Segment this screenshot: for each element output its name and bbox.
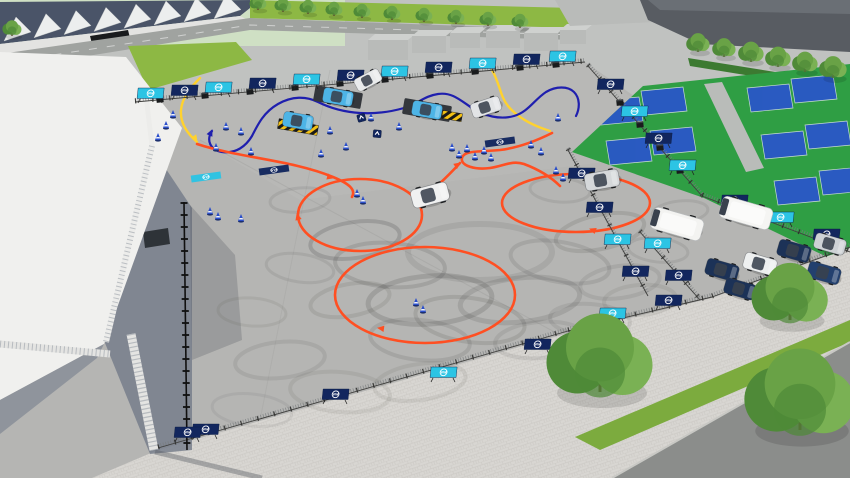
vw-logo-text: VW	[559, 54, 566, 58]
car-glass	[593, 173, 608, 188]
banner-board: VW	[137, 88, 164, 99]
cone-stripe	[156, 137, 160, 139]
banner-board: VW	[425, 62, 452, 73]
tree-shadow	[253, 9, 267, 14]
cone-stripe	[216, 216, 220, 218]
barrier-block	[616, 99, 624, 106]
tree-canopy	[358, 9, 366, 17]
cone-stripe	[489, 157, 493, 159]
tree-canopy	[254, 1, 262, 9]
banner-board: VW	[586, 202, 613, 213]
banner-board: VW	[645, 133, 672, 144]
car-glass	[330, 90, 343, 103]
banner-board: VW	[171, 85, 198, 96]
tree-shadow	[357, 17, 371, 22]
vw-logo-text: VW	[303, 77, 310, 81]
banner-board: VW	[205, 82, 232, 93]
banner-board: VW	[322, 389, 349, 400]
vw-logo-text: VW	[391, 69, 398, 73]
banner-board: VW	[665, 270, 692, 281]
banner-board: VW	[644, 238, 671, 249]
vw-logo-text: VW	[259, 81, 266, 85]
cone-stripe	[421, 309, 425, 311]
tree-shadow	[419, 21, 433, 26]
banner-board: VW	[549, 51, 576, 62]
barrier-block	[656, 144, 664, 151]
cone-stripe	[355, 193, 359, 195]
cone-stripe	[529, 144, 533, 146]
vw-logo-text: VW	[523, 57, 530, 61]
tree-canopy	[827, 65, 840, 78]
rendered-scene: VWVWVW VWVWVWVWVWVWVWVWVWVWVWVWVWVWVWVWV…	[0, 0, 850, 478]
tennis-court	[761, 131, 807, 159]
vw-logo-text: VW	[609, 311, 616, 315]
cone-stripe	[164, 125, 168, 127]
tree-shadow	[387, 19, 401, 24]
cone-stripe	[319, 153, 323, 155]
vw-logo-text: VW	[679, 163, 686, 167]
cone-stripe	[328, 130, 332, 132]
vw-logo-text: VW	[654, 241, 661, 245]
tennis-court	[805, 121, 850, 149]
banner-board: VW	[249, 78, 276, 89]
sign-board	[373, 130, 382, 138]
banner-board: VW	[622, 266, 649, 277]
vw-logo-text: VW	[614, 237, 621, 241]
cone-stripe	[473, 156, 477, 158]
barrier-block	[516, 64, 524, 71]
building-roof	[412, 30, 453, 36]
cone-stripe	[208, 211, 212, 213]
tree-shadow	[483, 25, 497, 30]
banner-board: VW	[524, 339, 551, 350]
vw-logo-text: VW	[665, 298, 672, 302]
tree-canopy	[799, 60, 811, 72]
tree-shadow	[451, 23, 465, 28]
building-front	[560, 30, 586, 44]
vw-logo-text: VW	[578, 171, 585, 175]
car-glass	[419, 103, 432, 116]
banner-board: VW	[604, 234, 631, 245]
vw-logo-text: VW	[202, 427, 209, 431]
tree-canopy	[575, 348, 625, 398]
tree-shadow	[515, 27, 529, 32]
cone-stripe	[450, 147, 454, 149]
tree-canopy	[388, 11, 396, 19]
building-front	[450, 33, 480, 48]
tree-canopy	[774, 384, 826, 436]
cone-stripe	[457, 154, 461, 156]
building-roof	[524, 27, 565, 33]
cone-stripe	[554, 170, 558, 172]
cone-stripe	[249, 151, 253, 153]
vw-logo-text: VW	[184, 430, 191, 434]
vw-logo-text: VW	[215, 85, 222, 89]
vw-logo-text: VW	[534, 342, 541, 346]
cone-stripe	[239, 218, 243, 220]
banner-board: VW	[597, 79, 624, 90]
banner-board: VW	[621, 106, 648, 117]
cone-stripe	[465, 148, 469, 150]
cone-stripe	[369, 117, 373, 119]
vw-logo-text: VW	[596, 205, 603, 209]
building-front	[368, 40, 408, 60]
vw-logo-text: VW	[440, 370, 447, 374]
cone-stripe	[414, 302, 418, 304]
barrier-block	[246, 88, 254, 95]
tree-canopy	[304, 5, 312, 13]
tree-canopy	[516, 19, 524, 27]
building-block	[368, 34, 415, 60]
vw-logo-text: VW	[777, 215, 784, 219]
tennis-court	[819, 167, 850, 195]
vw-logo-text: VW	[675, 273, 682, 277]
banner-board: VW	[513, 54, 540, 65]
cone-stripe	[561, 177, 565, 179]
direction-arrow-sign	[373, 130, 382, 138]
banner-board: VW	[174, 427, 201, 438]
barrier-block	[552, 61, 560, 68]
banner-board: VW	[655, 295, 682, 306]
banner-board: VW	[293, 74, 320, 85]
barrier-block	[636, 121, 644, 128]
tree-shadow	[278, 11, 292, 16]
building-front	[412, 36, 446, 53]
cone-stripe	[224, 126, 228, 128]
vw-logo-text: VW	[631, 109, 638, 113]
cone-stripe	[214, 147, 218, 149]
cone-stripe	[482, 150, 486, 152]
banner-board: VW	[430, 367, 457, 378]
cone-stripe	[171, 114, 175, 116]
vw-logo-text: VW	[347, 73, 354, 77]
tree-canopy	[279, 3, 287, 11]
tree-shadow	[329, 15, 343, 20]
vw-logo-text: VW	[435, 65, 442, 69]
cone-stripe	[344, 146, 348, 148]
tennis-court	[641, 87, 687, 115]
tree-canopy	[693, 41, 704, 52]
building-front	[524, 33, 558, 51]
vw-logo-text: VW	[181, 88, 188, 92]
car-glass	[290, 114, 303, 127]
vw-logo-text: VW	[632, 269, 639, 273]
tree-canopy	[772, 287, 808, 323]
vw-logo-text: VW	[479, 61, 486, 65]
tree-canopy	[330, 7, 338, 15]
barrier-block	[426, 72, 434, 79]
banner-board: VW	[669, 160, 696, 171]
tree-canopy	[484, 17, 492, 25]
vw-logo-text: VW	[147, 91, 154, 95]
tennis-court	[774, 177, 820, 205]
vw-logo-text: VW	[655, 136, 662, 140]
tree-canopy	[452, 15, 460, 23]
tree-canopy	[8, 26, 17, 35]
vw-logo-text: VW	[607, 82, 614, 86]
cone-stripe	[556, 117, 560, 119]
vw-logo-text: VW	[332, 392, 339, 396]
tree-canopy	[745, 50, 757, 62]
tree-shadow	[303, 13, 317, 18]
tree-canopy	[719, 46, 730, 57]
banner-board: VW	[469, 58, 496, 69]
cone-stripe	[361, 200, 365, 202]
cone-stripe	[239, 131, 243, 133]
banner-board: VW	[381, 66, 408, 77]
scene-svg: VWVWVW VWVWVWVWVWVWVWVWVWVWVWVWVWVWVWVWV…	[0, 0, 850, 478]
tree-canopy	[420, 13, 428, 21]
tennis-court	[747, 84, 793, 112]
building-front	[486, 31, 520, 48]
tree-canopy	[772, 55, 784, 67]
cone-stripe	[539, 151, 543, 153]
cone-stripe	[397, 126, 401, 128]
tree-shadow	[6, 34, 22, 39]
building-roof	[368, 34, 415, 40]
